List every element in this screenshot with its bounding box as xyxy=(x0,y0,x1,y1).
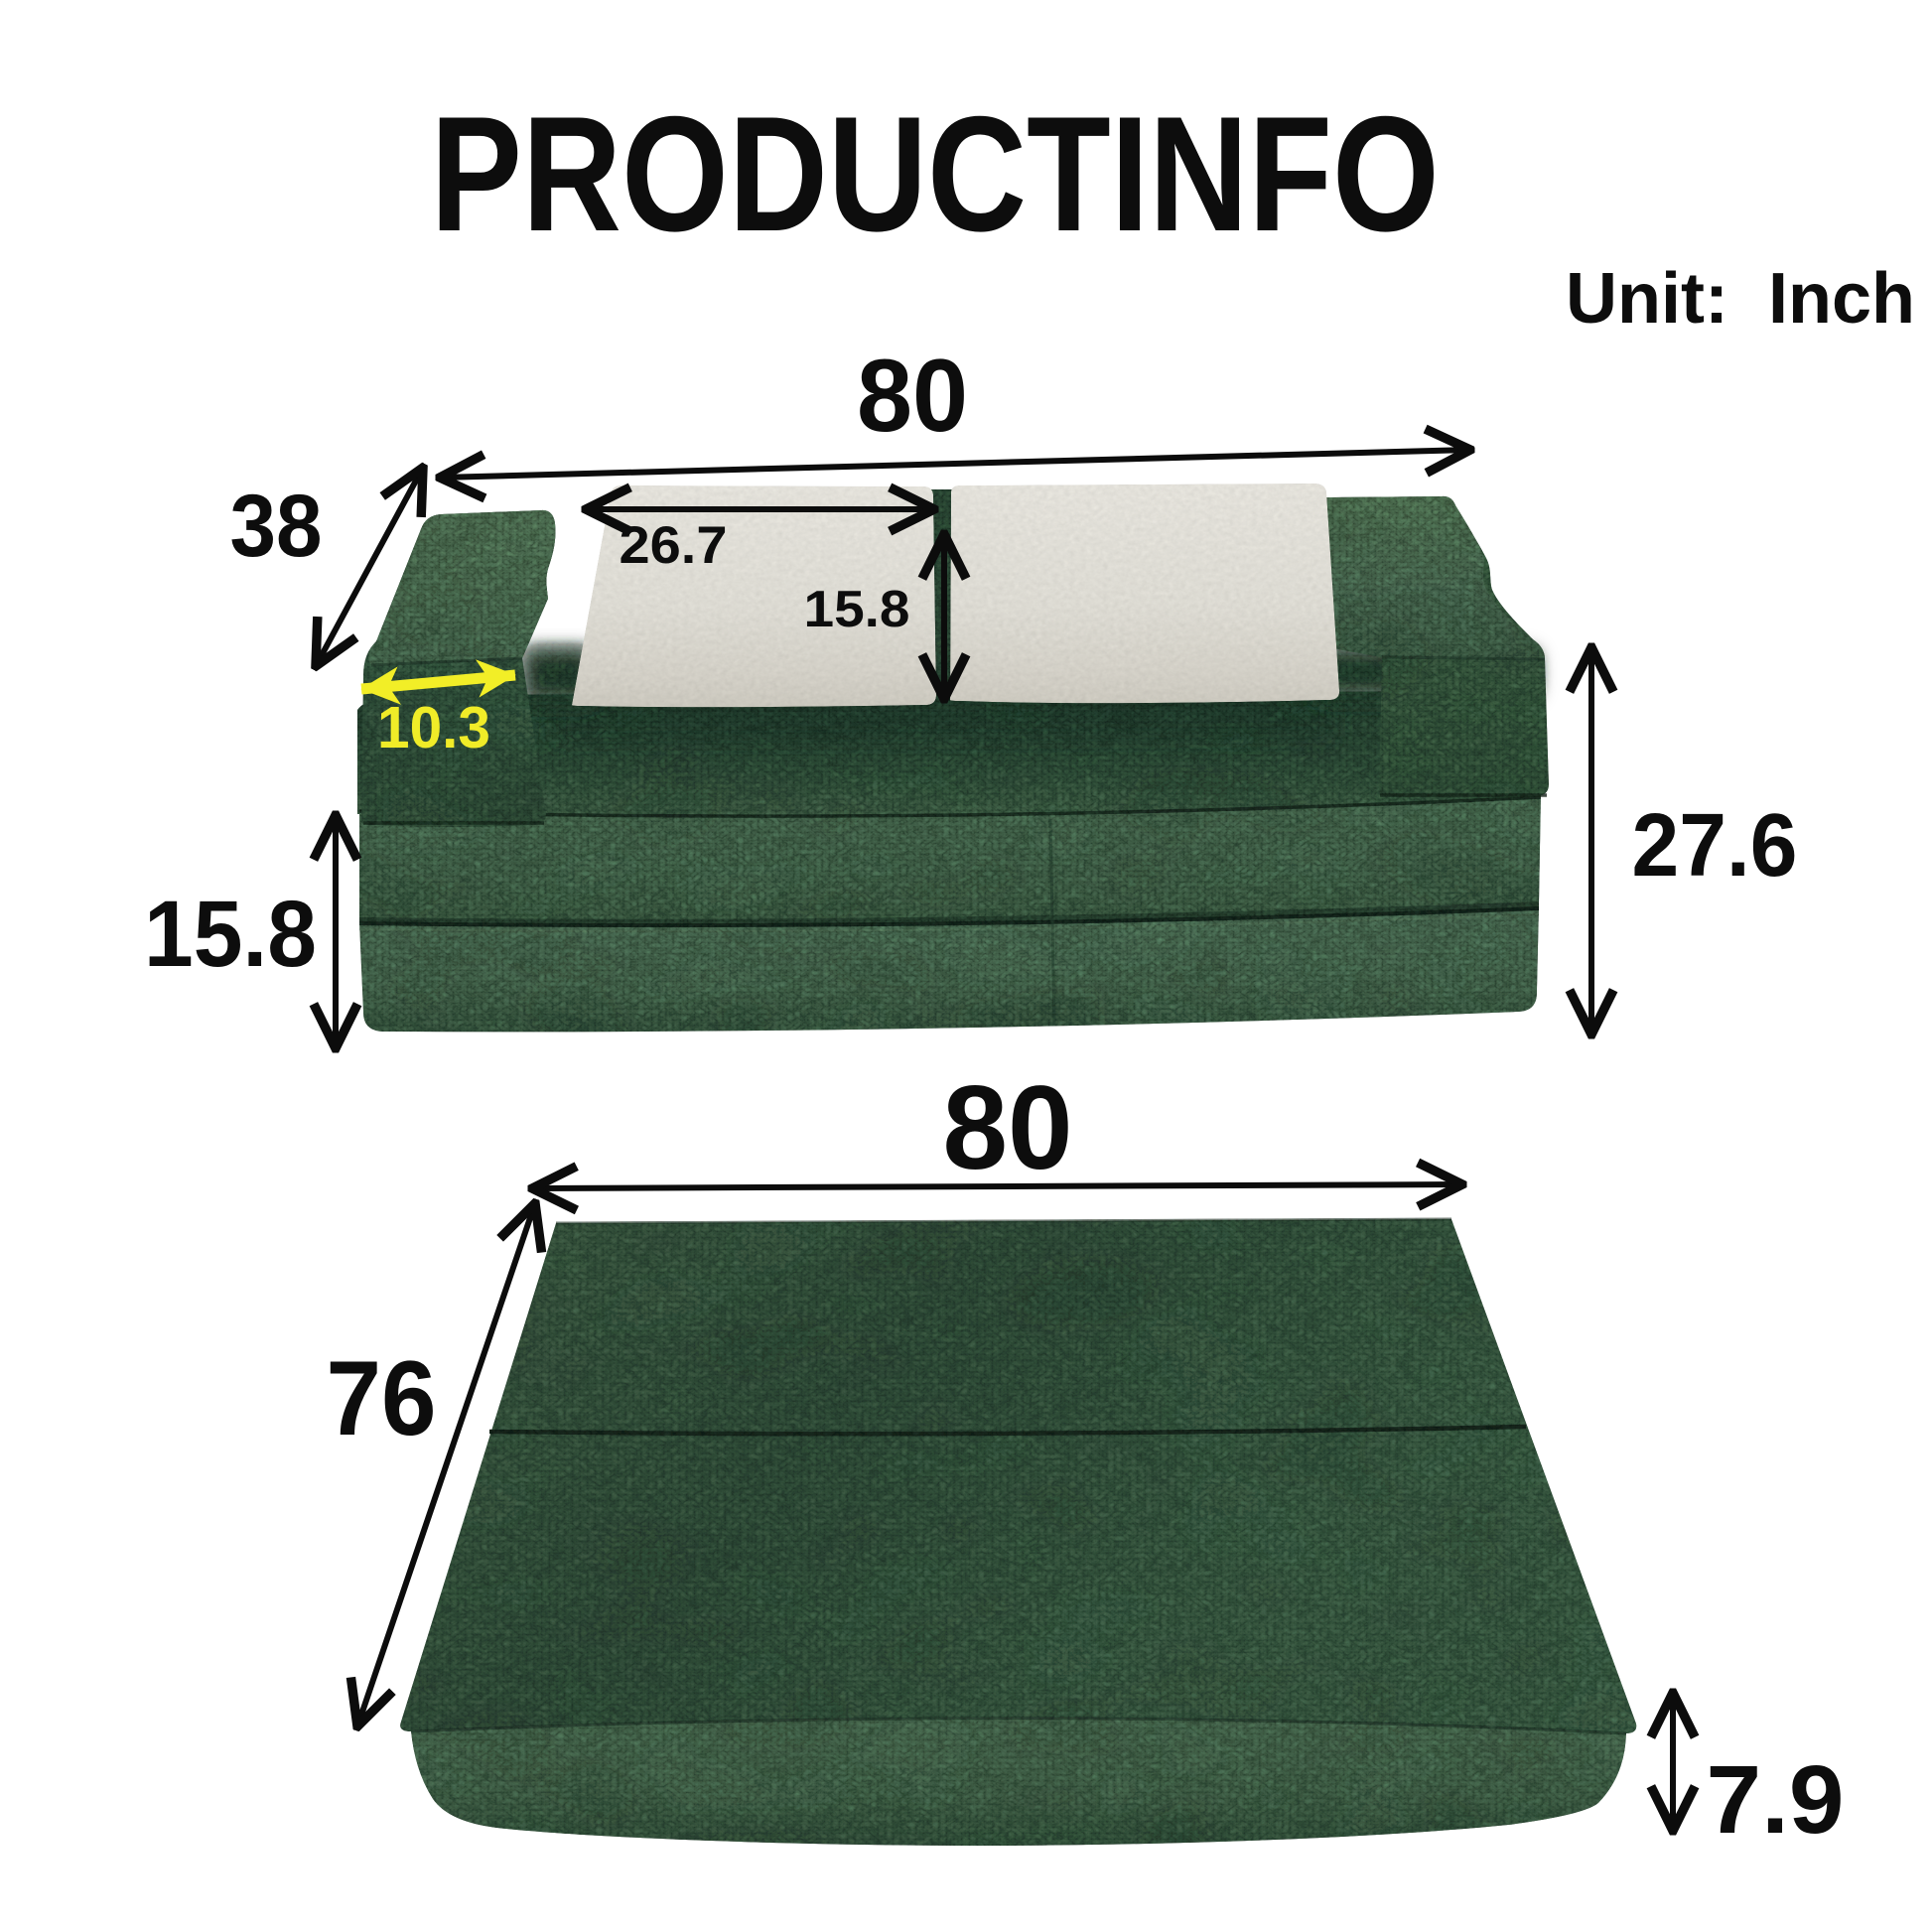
svg-text:15.8: 15.8 xyxy=(144,882,317,987)
svg-text:27.6: 27.6 xyxy=(1632,796,1798,896)
svg-text:38: 38 xyxy=(230,476,323,575)
svg-text:Unit: Inch: Unit: Inch xyxy=(1566,259,1915,339)
svg-text:PRODUCTINFO: PRODUCTINFO xyxy=(431,83,1440,266)
svg-text:7.9: 7.9 xyxy=(1707,1745,1845,1854)
svg-text:76: 76 xyxy=(327,1338,437,1457)
svg-text:26.7: 26.7 xyxy=(620,516,728,575)
svg-text:80: 80 xyxy=(857,339,968,454)
svg-text:80: 80 xyxy=(943,1061,1073,1194)
svg-text:10.3: 10.3 xyxy=(377,695,490,760)
svg-text:15.8: 15.8 xyxy=(804,581,910,638)
